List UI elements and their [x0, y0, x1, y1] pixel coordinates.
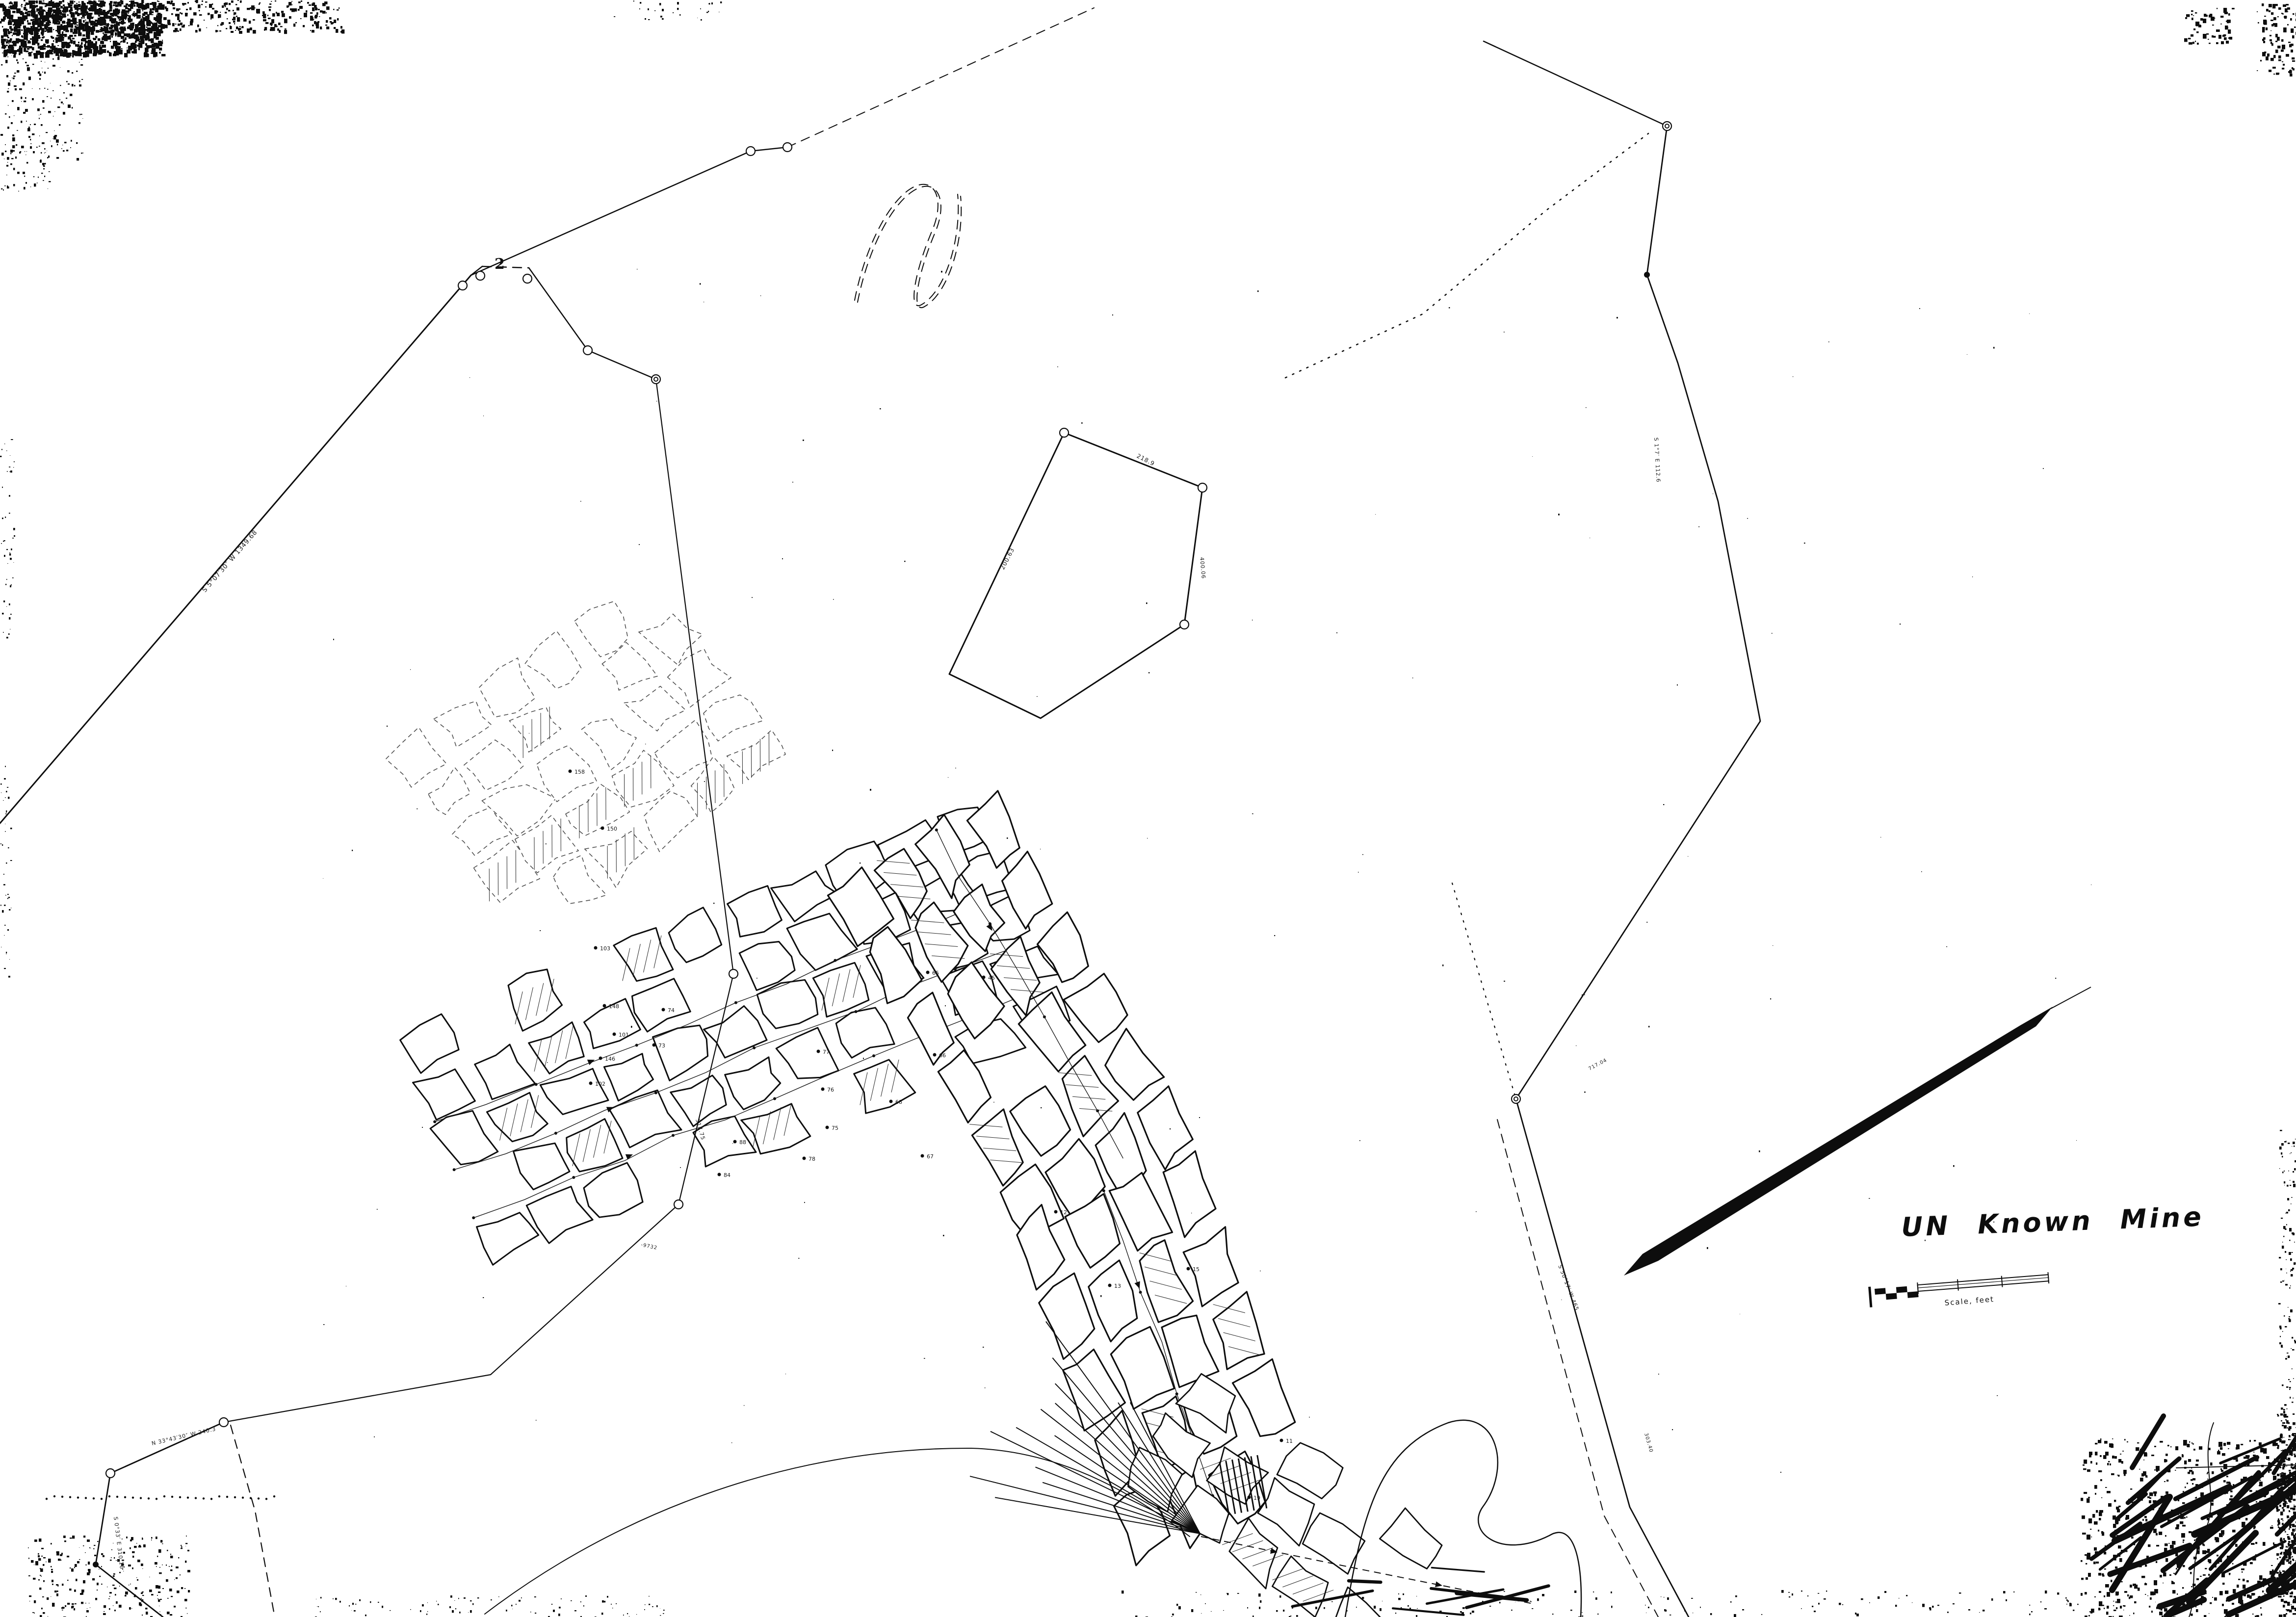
noise-speck [2277, 16, 2279, 17]
noise-speck [111, 1549, 112, 1550]
noise-speck [21, 43, 22, 43]
noise-speck [196, 1, 198, 3]
noise-speck [2273, 1479, 2274, 1481]
noise-speck [111, 36, 113, 38]
noise-speck [69, 20, 73, 22]
noise-speck [1672, 1429, 1673, 1430]
noise-speck [2156, 1545, 2159, 1546]
noise-speck [2283, 1605, 2285, 1608]
noise-speck [2291, 1606, 2294, 1610]
noise-speck [61, 148, 62, 149]
noise-speck [1081, 422, 1083, 424]
noise-speck [24, 29, 26, 30]
noise-speck [17, 11, 19, 13]
noise-speck [2284, 1185, 2285, 1185]
noise-speck [752, 597, 753, 598]
noise-speck [2029, 313, 2030, 314]
dotted-row-dot [179, 1496, 181, 1498]
noise-speck [71, 140, 72, 142]
noise-speck [87, 1572, 90, 1575]
noise-speck [326, 26, 329, 29]
noise-speck [10, 614, 12, 615]
noise-speck [72, 72, 73, 74]
noise-speck [114, 51, 117, 54]
noise-speck [142, 33, 145, 37]
noise-speck [583, 1605, 584, 1607]
claim-corner-station [1198, 483, 1207, 492]
noise-speck [1504, 332, 1505, 333]
noise-speck [3, 5, 5, 7]
noise-speck [2283, 1538, 2285, 1540]
noise-speck [2156, 1466, 2160, 1471]
noise-speck [5, 151, 6, 152]
station-dot [1108, 1284, 1112, 1287]
noise-speck [833, 599, 834, 600]
noise-speck [2203, 1574, 2206, 1576]
noise-speck [51, 1543, 52, 1544]
noise-speck [229, 22, 231, 24]
noise-speck [2277, 1414, 2278, 1415]
noise-speck [2283, 1409, 2285, 1410]
noise-speck [2184, 1467, 2187, 1469]
noise-speck [2283, 1466, 2285, 1467]
noise-speck [87, 2, 91, 4]
noise-speck [659, 3, 661, 5]
noise-speck [241, 26, 244, 28]
noise-speck [2288, 1541, 2291, 1543]
noise-speck [179, 20, 181, 22]
noise-speck [2225, 1591, 2228, 1594]
noise-speck [2, 42, 4, 44]
noise-speck [1211, 1611, 1212, 1612]
noise-speck [2232, 1563, 2233, 1565]
noise-speck [41, 152, 42, 154]
noise-speck [2276, 1553, 2279, 1556]
noise-speck [195, 30, 198, 32]
noise-speck [48, 68, 49, 69]
noise-speck [662, 9, 664, 11]
noise-speck [89, 1603, 89, 1604]
noise-speck [167, 1598, 169, 1599]
noise-speck [259, 3, 260, 5]
noise-speck [46, 1562, 47, 1562]
noise-speck [2171, 1581, 2172, 1582]
noise-speck [1617, 317, 1618, 318]
noise-speck [32, 47, 34, 51]
noise-speck [2260, 1448, 2264, 1453]
noise-speck [732, 1143, 733, 1144]
noise-speck [64, 142, 67, 143]
noise-speck [2261, 1614, 2262, 1616]
noise-speck [1532, 1608, 1533, 1609]
noise-speck [2292, 1368, 2293, 1369]
noise-speck [81, 39, 85, 42]
noise-speck [1576, 1045, 1576, 1046]
noise-speck [2289, 1610, 2292, 1613]
noise-speck [1734, 1614, 1736, 1617]
noise-speck [1252, 620, 1252, 621]
noise-speck [627, 1613, 628, 1614]
noise-speck [2202, 1550, 2206, 1554]
noise-speck [2255, 1542, 2257, 1544]
noise-speck [316, 8, 318, 10]
noise-speck [4, 443, 5, 444]
noise-speck [10, 80, 11, 81]
noise-speck [427, 1602, 428, 1603]
noise-speck [218, 17, 219, 18]
noise-speck [2105, 1452, 2109, 1456]
noise-speck [2281, 1408, 2283, 1409]
noise-speck [142, 1615, 143, 1616]
noise-speck [14, 28, 16, 31]
noise-speck [44, 72, 46, 74]
noise-speck [2077, 1604, 2079, 1605]
noise-speck [113, 9, 115, 10]
noise-speck [54, 1591, 57, 1592]
noise-speck [139, 41, 141, 42]
noise-speck [2277, 1558, 2278, 1560]
noise-speck [108, 16, 111, 18]
noise-speck [4, 40, 6, 41]
claim-corner-station [1060, 428, 1069, 437]
noise-speck [2121, 1461, 2123, 1464]
noise-speck [2082, 1533, 2086, 1535]
noise-speck [57, 20, 59, 22]
noise-speck [2206, 1551, 2210, 1553]
noise-speck [175, 28, 178, 31]
noise-speck [2087, 1498, 2089, 1503]
noise-speck [561, 1598, 562, 1599]
noise-speck [43, 1612, 45, 1614]
noise-speck [2182, 1525, 2186, 1527]
noise-speck [483, 1297, 484, 1298]
station-number: 65 [932, 970, 939, 976]
noise-speck [2286, 1408, 2288, 1409]
noise-speck [1953, 1603, 1955, 1604]
noise-speck [312, 25, 314, 26]
noise-speck [2086, 1563, 2087, 1565]
noise-speck [2176, 1524, 2179, 1527]
noise-speck [2137, 1442, 2139, 1443]
noise-speck [17, 62, 19, 64]
noise-speck [2191, 1614, 2193, 1616]
noise-speck [2189, 1461, 2190, 1462]
noise-speck [2089, 1452, 2092, 1455]
noise-speck [2222, 1604, 2224, 1606]
noise-speck [54, 16, 57, 19]
noise-speck [1, 35, 3, 37]
noise-speck [25, 62, 27, 63]
noise-speck [6, 954, 7, 954]
noise-speck [13, 168, 15, 170]
dotted-row-dot [108, 1495, 110, 1497]
noise-speck [110, 41, 111, 42]
noise-speck [235, 4, 237, 5]
noise-speck [1358, 872, 1358, 873]
noise-speck [122, 1539, 123, 1539]
noise-speck [128, 4, 130, 5]
noise-speck [1178, 1606, 1181, 1609]
noise-speck [2290, 18, 2292, 21]
noise-speck [2281, 1152, 2282, 1154]
noise-speck [74, 1, 75, 2]
dotted-row-dot [124, 1496, 126, 1498]
noise-speck [217, 11, 218, 13]
noise-speck [1416, 1615, 1417, 1617]
noise-speck [37, 108, 40, 111]
noise-speck [334, 27, 336, 29]
noise-speck [227, 18, 228, 20]
noise-speck [2292, 1252, 2293, 1253]
noise-speck [98, 38, 100, 41]
noise-speck [247, 8, 250, 10]
noise-speck [616, 1603, 617, 1604]
noise-speck [142, 13, 145, 16]
noise-speck [2217, 1451, 2220, 1455]
noise-speck [103, 19, 105, 22]
noise-speck [757, 978, 757, 979]
noise-speck [1172, 1614, 1174, 1616]
noise-speck [993, 1102, 994, 1102]
noise-speck [8, 847, 9, 848]
noise-speck [1040, 849, 1041, 849]
noise-speck [955, 768, 956, 768]
noise-speck [2284, 1280, 2285, 1280]
noise-speck [2290, 1153, 2291, 1154]
noise-speck [169, 1589, 172, 1591]
noise-speck [2283, 1463, 2286, 1466]
noise-speck [2285, 1531, 2286, 1533]
noise-speck [107, 27, 108, 28]
noise-speck [2281, 50, 2284, 52]
noise-speck [1693, 1613, 1693, 1613]
noise-speck [2293, 1398, 2294, 1398]
noise-speck [2286, 1444, 2288, 1446]
noise-speck [180, 1574, 181, 1575]
noise-speck [2259, 1482, 2263, 1487]
noise-speck [113, 22, 114, 23]
noise-speck [2214, 1597, 2217, 1601]
noise-speck [1930, 1608, 1931, 1611]
noise-speck [470, 1600, 472, 1601]
noise-speck [110, 13, 112, 15]
noise-speck [28, 1575, 30, 1576]
noise-speck [2266, 1456, 2270, 1459]
dotted-row-dot [93, 1497, 95, 1499]
noise-speck [11, 584, 12, 586]
noise-speck [66, 150, 68, 151]
noise-speck [43, 52, 45, 53]
noise-speck [2203, 19, 2206, 23]
noise-speck [677, 8, 679, 10]
noise-speck [43, 1564, 45, 1566]
noise-speck [2287, 1515, 2289, 1518]
noise-speck [2204, 1615, 2206, 1617]
noise-speck [1921, 871, 1922, 872]
noise-speck [2282, 61, 2283, 62]
noise-speck [1, 449, 2, 450]
noise-speck [1499, 1602, 1500, 1603]
noise-speck [114, 1610, 116, 1611]
noise-speck [206, 27, 207, 28]
noise-speck [249, 21, 251, 24]
noise-speck [128, 13, 129, 14]
noise-speck [138, 43, 142, 48]
noise-speck [171, 1565, 172, 1567]
noise-speck [34, 183, 36, 186]
noise-speck [234, 14, 235, 15]
noise-speck [2273, 55, 2276, 58]
noise-speck [2290, 1309, 2293, 1312]
noise-speck [85, 22, 89, 24]
noise-speck [335, 1598, 337, 1600]
noise-speck [2293, 1142, 2295, 1144]
noise-speck [2216, 1538, 2219, 1542]
noise-speck [135, 1587, 137, 1590]
noise-speck [11, 15, 12, 16]
noise-speck [92, 24, 93, 25]
noise-speck [2182, 1455, 2184, 1458]
noise-speck [65, 1605, 66, 1607]
noise-speck [2200, 18, 2203, 21]
noise-speck [314, 21, 316, 24]
noise-speck [51, 0, 52, 2]
noise-speck [2283, 1503, 2286, 1507]
noise-speck [63, 1536, 66, 1538]
noise-speck [64, 42, 67, 46]
noise-speck [124, 22, 126, 24]
noise-speck [1252, 813, 1253, 814]
noise-speck [2131, 1537, 2134, 1539]
noise-speck [2, 518, 3, 519]
mine-map-canvas: 1031481011461027473777675788884676866651… [0, 0, 2296, 1617]
noise-speck [79, 62, 79, 63]
noise-speck [141, 1564, 143, 1566]
noise-speck [2166, 1491, 2168, 1494]
noise-speck [232, 19, 234, 20]
noise-speck [127, 26, 130, 29]
noise-speck [67, 14, 69, 16]
noise-speck [2288, 1458, 2290, 1461]
noise-speck [2286, 1386, 2288, 1388]
noise-speck [2, 844, 3, 846]
noise-speck [2149, 1500, 2151, 1503]
noise-speck [2281, 1518, 2283, 1520]
noise-speck [540, 930, 541, 931]
noise-speck [122, 1568, 123, 1569]
noise-speck [98, 50, 102, 54]
noise-speck [181, 1587, 183, 1589]
noise-speck [1398, 1593, 1399, 1594]
noise-speck [123, 1571, 124, 1571]
noise-speck [1100, 1295, 1102, 1297]
noise-speck [2279, 1257, 2281, 1258]
noise-speck [2189, 42, 2192, 45]
noise-speck [40, 11, 41, 12]
noise-speck [2284, 1315, 2285, 1317]
noise-speck [68, 25, 71, 27]
noise-speck [89, 17, 91, 19]
noise-speck [2160, 1575, 2162, 1577]
noise-speck [43, 1557, 46, 1559]
noise-speck [217, 30, 218, 32]
noise-speck [10, 860, 12, 861]
noise-speck [511, 1605, 513, 1606]
noise-speck [2155, 1602, 2156, 1602]
noise-speck [124, 1566, 125, 1567]
noise-speck [184, 1588, 185, 1589]
noise-speck [17, 130, 18, 131]
station-dot [601, 827, 604, 830]
noise-speck [58, 31, 61, 34]
noise-speck [2116, 1607, 2117, 1609]
noise-speck [14, 73, 16, 74]
noise-speck [2104, 1608, 2105, 1609]
noise-speck [387, 726, 388, 727]
noise-speck [12, 439, 13, 440]
noise-speck [2186, 1516, 2188, 1518]
noise-speck [2293, 1378, 2294, 1379]
noise-speck [2090, 1612, 2092, 1614]
noise-speck [57, 106, 60, 108]
noise-speck [39, 135, 40, 136]
noise-speck [2282, 1280, 2284, 1282]
noise-speck [2290, 1252, 2291, 1253]
station-number: 11 [1286, 1438, 1293, 1444]
noise-speck [2259, 1575, 2262, 1580]
noise-speck [149, 11, 152, 15]
noise-speck [1648, 1607, 1649, 1608]
noise-speck [346, 1286, 346, 1286]
noise-speck [4, 185, 6, 186]
noise-speck [1552, 1614, 1553, 1615]
noise-speck [2293, 1499, 2296, 1501]
noise-speck [159, 1572, 162, 1574]
noise-speck [607, 1596, 608, 1598]
noise-speck [6, 450, 7, 451]
noise-speck [7, 29, 9, 31]
noise-speck [321, 28, 322, 29]
noise-speck [536, 1420, 536, 1421]
noise-speck [183, 3, 186, 5]
noise-speck [10, 150, 13, 153]
noise-speck [46, 29, 49, 31]
noise-speck [129, 15, 131, 17]
noise-speck [2287, 1185, 2289, 1187]
noise-speck [117, 16, 119, 18]
dotted-row-dot [140, 1497, 142, 1499]
noise-speck [58, 1559, 61, 1561]
noise-speck [30, 26, 33, 28]
noise-speck [2189, 1531, 2192, 1533]
noise-speck [115, 9, 117, 10]
survey-station [106, 1469, 115, 1478]
noise-speck [156, 37, 159, 40]
scale-bar-checker [1875, 1288, 1886, 1295]
noise-speck [330, 21, 332, 23]
noise-speck [14, 2, 16, 3]
noise-speck [62, 31, 63, 33]
noise-speck [2294, 1433, 2296, 1434]
noise-speck [157, 14, 158, 15]
noise-speck [863, 1058, 864, 1059]
noise-speck [97, 1590, 98, 1591]
noise-speck [1362, 854, 1363, 855]
noise-speck [1476, 1211, 1477, 1212]
noise-speck [2286, 1559, 2289, 1562]
noise-speck [1919, 308, 1920, 309]
noise-speck [126, 1537, 128, 1539]
